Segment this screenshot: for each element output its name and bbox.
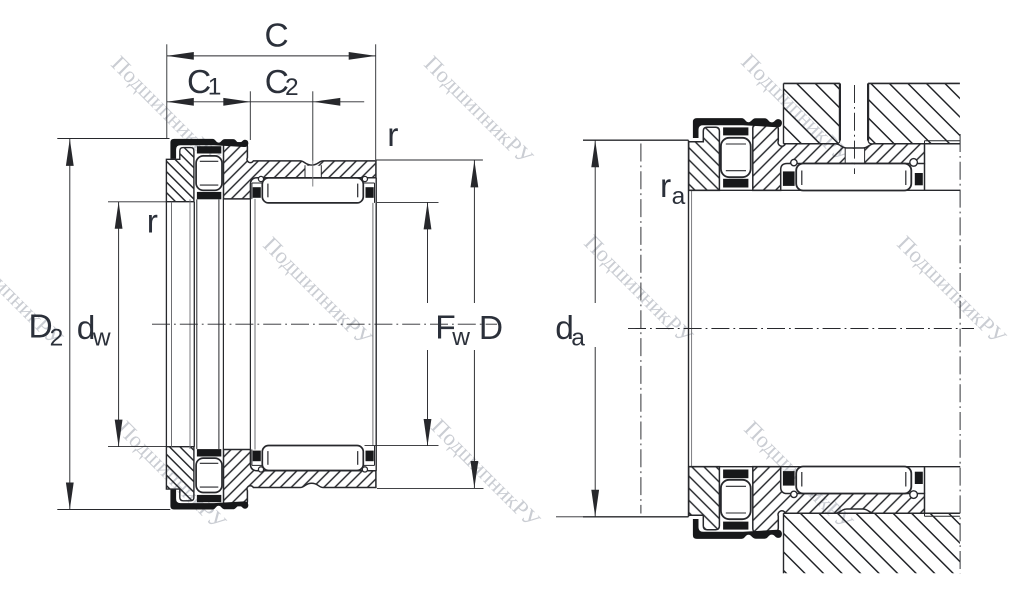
svg-text:D: D <box>479 310 503 347</box>
svg-text:r: r <box>147 204 158 241</box>
svg-text:w: w <box>92 325 111 352</box>
svg-text:C: C <box>265 17 289 54</box>
svg-text:r: r <box>660 168 671 205</box>
svg-text:2: 2 <box>50 325 64 352</box>
svg-text:2: 2 <box>285 74 299 101</box>
svg-text:a: a <box>672 183 686 210</box>
svg-text:1: 1 <box>208 74 222 101</box>
svg-text:w: w <box>451 324 470 351</box>
svg-text:r: r <box>387 117 398 154</box>
svg-text:a: a <box>571 325 585 352</box>
